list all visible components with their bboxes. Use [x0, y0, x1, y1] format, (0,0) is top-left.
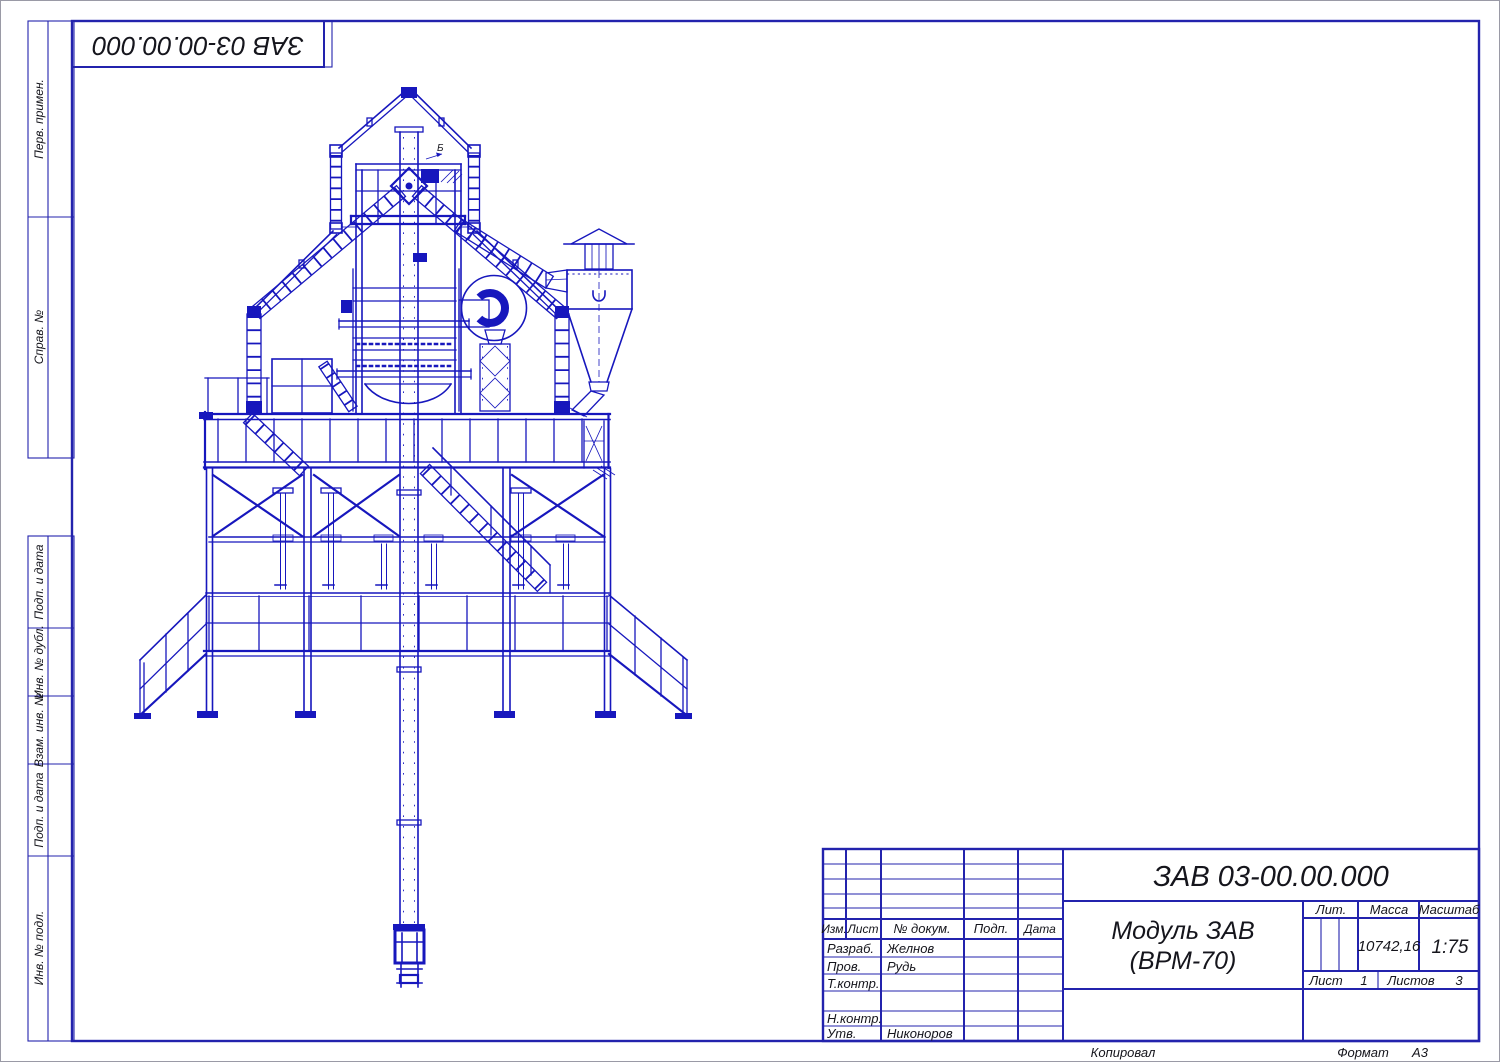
massa-value: 10742,16 [1358, 938, 1421, 955]
conveyor-chutes [251, 186, 566, 319]
label-podp-data-1: Подп. и дата [32, 544, 46, 619]
machine-drawing: Б [134, 87, 692, 987]
label-vzam-inv: Взам. инв. № [32, 693, 46, 767]
listov-label: Листов [1386, 973, 1435, 988]
outer-stair-right [609, 595, 692, 719]
cleaner-tower [337, 164, 471, 414]
razrab-name: Желнов [886, 941, 934, 956]
tkontr-label: Т.контр. [827, 976, 879, 991]
section-annotation: Б [426, 143, 444, 159]
label-inv-podl: Инв. № подл. [32, 911, 46, 985]
list-label: Лист [1308, 973, 1343, 988]
doc-title-line1: Модуль ЗАВ [1111, 917, 1254, 945]
margin-labels: Перв. примен. Справ. № Подп. и дата Инв.… [32, 79, 46, 985]
cyclone [546, 229, 634, 417]
format-value: А3 [1411, 1045, 1429, 1060]
masshtab-label: Масштаб [1419, 902, 1480, 917]
mid-railing [204, 593, 610, 656]
doc-designation: ЗАВ 03-00.00.000 [1153, 861, 1388, 893]
utv-name: Никоноров [887, 1026, 953, 1041]
razrab-label: Разраб. [827, 941, 874, 956]
col-data: Дата [1022, 922, 1056, 936]
label-inv-dubl: Инв. № дубл. [32, 625, 46, 699]
massa-label: Масса [1370, 902, 1408, 917]
copied-label: Копировал [1091, 1045, 1156, 1060]
corner-designation: ЗАВ 03-00.00.000 [92, 31, 304, 61]
nkontr-label: Н.контр. [827, 1011, 882, 1026]
label-sprav-no: Справ. № [32, 310, 46, 365]
margin-strip [28, 21, 74, 1041]
list-value: 1 [1360, 973, 1367, 988]
drawing-sheet: ЗАВ 03-00.00.000 Перв. примен. Справ. № … [0, 0, 1500, 1062]
utv-label: Утв. [826, 1026, 857, 1041]
internal-stairs [244, 413, 550, 593]
lit-label: Лит. [1315, 902, 1346, 917]
prov-label: Пров. [827, 959, 861, 974]
doc-title-line2: (ВРМ-70) [1130, 947, 1237, 975]
col-podp: Подп. [974, 921, 1009, 936]
col-list: Лист [847, 922, 879, 936]
col-izm: Изм. [821, 922, 847, 936]
label-podp-data-2: Подп. и дата [32, 772, 46, 847]
outer-stair-left [134, 595, 206, 719]
fan-unit [459, 276, 527, 412]
title-block: Изм. Лист № докум. Подп. Дата Разраб. Же… [821, 849, 1480, 1041]
sheet-footer: Копировал Формат А3 [1091, 1045, 1429, 1060]
prov-name: Рудь [887, 959, 916, 974]
listov-value: 3 [1455, 973, 1463, 988]
format-label: Формат [1337, 1045, 1389, 1060]
masshtab-value: 1:75 [1432, 937, 1469, 958]
technical-drawing-canvas: ЗАВ 03-00.00.000 Перв. примен. Справ. № … [1, 1, 1500, 1062]
label-perv-primen: Перв. примен. [32, 79, 46, 159]
col-doc: № докум. [893, 921, 950, 936]
section-mark-label: Б [437, 143, 444, 154]
control-cabinet [272, 359, 357, 413]
